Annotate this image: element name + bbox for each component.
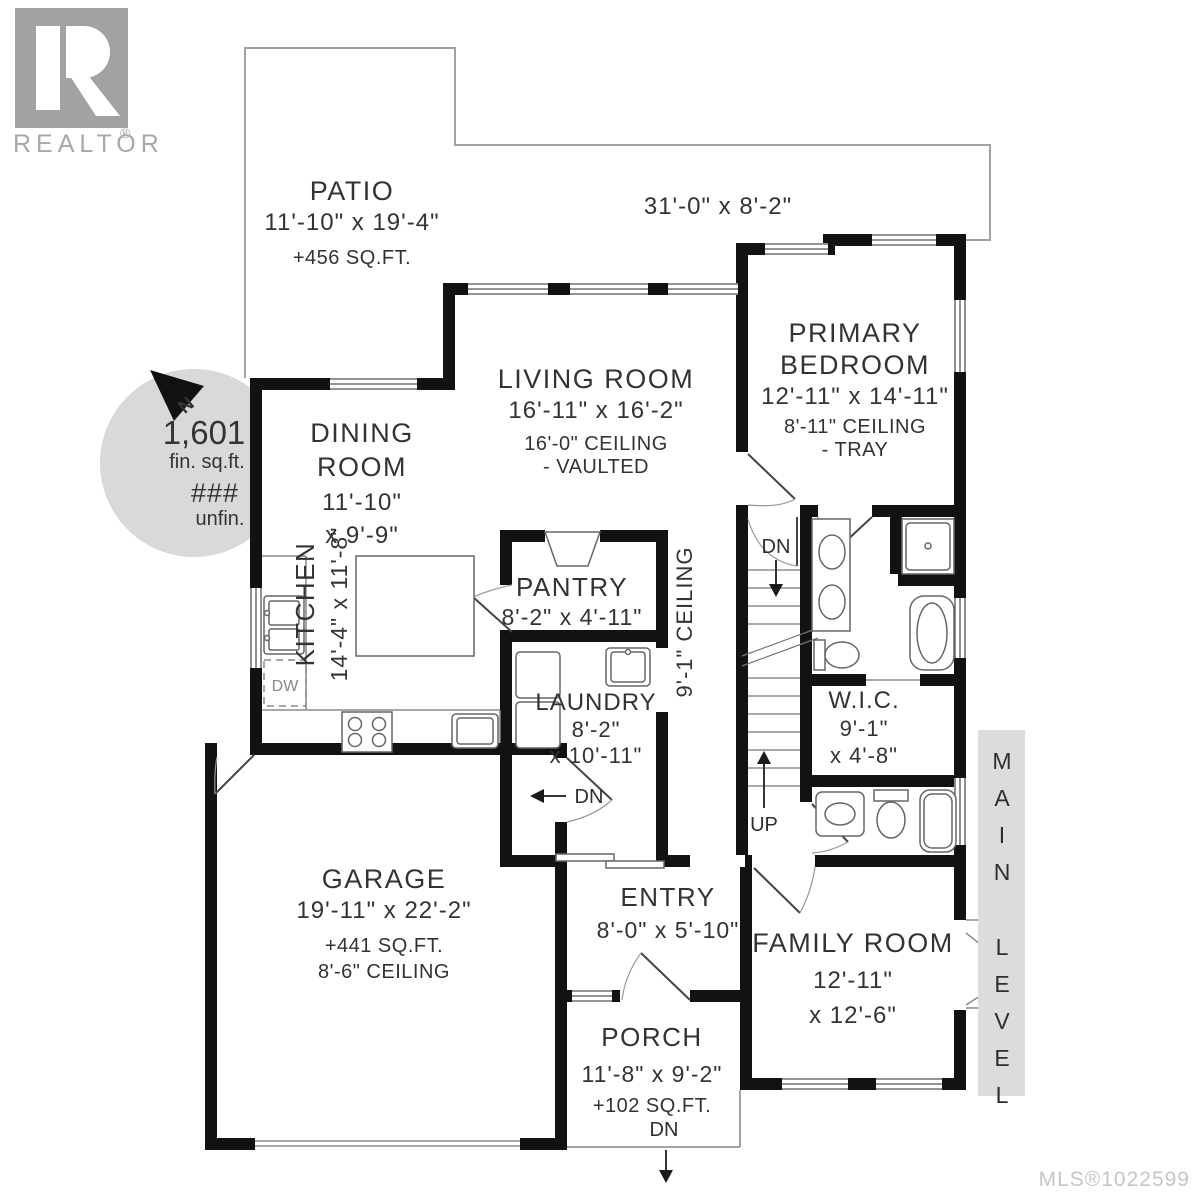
living-room-label: LIVING ROOM bbox=[498, 364, 695, 394]
primary-bedroom-label-2: BEDROOM bbox=[780, 350, 930, 380]
floor-plan-page: N 1,601 fin. sq.ft. ### unfin. bbox=[0, 0, 1200, 1200]
laundry-label: LAUNDRY bbox=[535, 689, 656, 716]
patio-dims: 11'-10" x 19'-4" bbox=[264, 209, 439, 236]
family-room-dims-1: 12'-11" bbox=[813, 967, 893, 994]
bath-vanity bbox=[816, 792, 864, 836]
dining-room-dims-1: 11'-10" bbox=[322, 489, 402, 516]
garage-down-label: DN bbox=[575, 786, 604, 808]
unfinished-area-label: unfin. bbox=[196, 508, 245, 530]
living-room-ceiling: 16'-0" CEILING bbox=[524, 433, 668, 455]
garage-door bbox=[255, 1141, 520, 1146]
realtor-registered-mark: ® bbox=[120, 125, 131, 141]
laundry-sink bbox=[606, 648, 650, 686]
prep-sink bbox=[452, 714, 498, 748]
family-room-dims-2: x 12'-6" bbox=[809, 1002, 897, 1029]
kitchen-dims: 14'-4" x 11'-8" bbox=[326, 527, 352, 682]
bathtub bbox=[910, 596, 954, 670]
dining-room-label-1: DINING bbox=[310, 418, 414, 448]
pantry-dims: 8'-2" x 4'-11" bbox=[502, 604, 643, 630]
wic-dims-1: 9'-1" bbox=[840, 716, 889, 741]
mls-number: MLS®1022599 bbox=[1039, 1168, 1190, 1191]
living-room-ceiling-note: - VAULTED bbox=[543, 456, 649, 478]
realtor-logo-text: REALTOR bbox=[13, 130, 164, 158]
living-room-dims: 16'-11" x 16'-2" bbox=[508, 397, 683, 424]
ensuite-vanity bbox=[812, 519, 850, 631]
deck-dims: 31'-0" x 8'-2" bbox=[644, 193, 792, 220]
stairs-up-label: UP bbox=[750, 814, 778, 836]
family-room-label: FAMILY ROOM bbox=[752, 928, 954, 958]
level-badge: MAIN LEVEL bbox=[978, 730, 1025, 1096]
entry-label: ENTRY bbox=[620, 882, 715, 912]
garage-area: +441 SQ.FT. bbox=[325, 935, 443, 957]
garage-ceiling: 8'-6" CEILING bbox=[318, 961, 450, 983]
laundry-dims-1: 8'-2" bbox=[572, 717, 621, 742]
laundry-dims-2: x 10'-11" bbox=[550, 743, 643, 768]
bath-tub bbox=[920, 790, 956, 852]
porch-down-label: DN bbox=[650, 1119, 679, 1141]
wic-dims-2: x 4'-8" bbox=[830, 743, 898, 768]
bath-toilet bbox=[874, 790, 908, 838]
stove bbox=[342, 712, 392, 752]
primary-bedroom-ceiling: 8'-11" CEILING bbox=[784, 416, 926, 438]
patio-area: +456 SQ.FT. bbox=[293, 247, 411, 269]
porch-area: +102 SQ.FT. bbox=[593, 1095, 711, 1117]
kitchen-label: KITCHEN bbox=[290, 542, 320, 667]
porch-dims: 11'-8" x 9'-2" bbox=[582, 1061, 723, 1087]
unfinished-area-value: ### bbox=[191, 478, 239, 508]
stairwell-ceiling: 9'-1" CEILING bbox=[672, 547, 697, 698]
kitchen-island bbox=[356, 556, 474, 656]
garage-dims: 19'-11" x 22'-2" bbox=[296, 897, 471, 924]
dishwasher-label: DW bbox=[272, 678, 300, 695]
entry-dims: 8'-0" x 5'-10" bbox=[597, 917, 740, 943]
primary-bedroom-label-1: PRIMARY bbox=[788, 318, 921, 348]
level-badge-word-2: LEVEL bbox=[988, 934, 1015, 1119]
pantry-label: PANTRY bbox=[516, 572, 628, 602]
shower bbox=[902, 519, 954, 574]
patio-label: PATIO bbox=[310, 176, 395, 206]
ensuite-toilet bbox=[814, 640, 859, 670]
finished-area-value: 1,601 bbox=[163, 414, 246, 451]
dining-room-label-2: ROOM bbox=[317, 452, 407, 482]
realtor-logo: REALTOR ® bbox=[13, 8, 164, 158]
porch-down-arrow: DN bbox=[650, 1119, 679, 1183]
garage-down-arrow: DN bbox=[530, 786, 603, 808]
built-in-cabinet bbox=[545, 532, 600, 566]
stairs-down-label: DN bbox=[762, 536, 791, 558]
stairs-up-arrow: UP bbox=[750, 751, 778, 836]
primary-bedroom-dims: 12'-11" x 14'-11" bbox=[761, 383, 949, 410]
finished-area-label: fin. sq.ft. bbox=[169, 451, 245, 473]
porch-label: PORCH bbox=[601, 1022, 702, 1052]
primary-bedroom-ceiling-note: - TRAY bbox=[822, 439, 889, 461]
wic-label: W.I.C. bbox=[828, 687, 899, 714]
level-badge-word-1: MAIN bbox=[988, 748, 1015, 896]
garage-label: GARAGE bbox=[322, 864, 447, 894]
